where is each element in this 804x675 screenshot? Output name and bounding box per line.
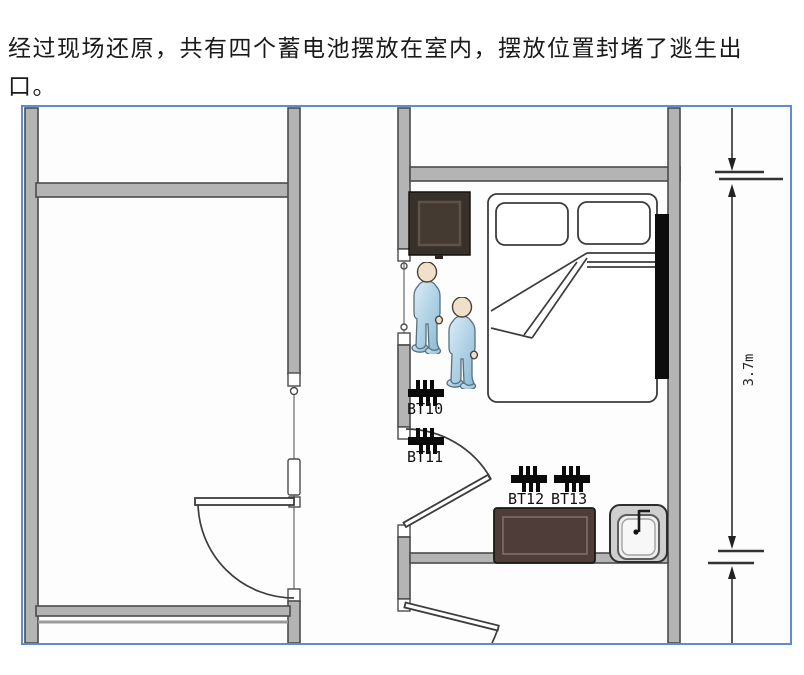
pillow-left: [496, 203, 568, 245]
bed: [488, 194, 669, 402]
battery-bt13-label: BT13: [551, 490, 587, 508]
blocker-bar: [655, 214, 669, 379]
caption-line-1: 经过现场还原，共有四个蓄电池摆放在室内，摆放位置封堵了逃生出: [8, 35, 743, 61]
arrow-down-icon: [728, 158, 736, 171]
dimension-annotation: 3.7m: [708, 108, 783, 643]
floor-plan-figure: BT10 BT11 BT12 BT13: [21, 105, 792, 645]
sink: [610, 505, 667, 562]
battery-bt12-symbol: [511, 466, 547, 492]
in-wall-panel: [288, 459, 300, 495]
lower-door: [404, 603, 498, 643]
door-leaf: [404, 603, 498, 631]
caption-text: 经过现场还原，共有四个蓄电池摆放在室内，摆放位置封堵了逃生出口。: [8, 29, 800, 105]
sofa-dark: [494, 508, 595, 563]
caption-line-2: 口。: [8, 73, 57, 99]
document-page: 经过现场还原，共有四个蓄电池摆放在室内，摆放位置封堵了逃生出口。: [0, 0, 804, 675]
floor-plan-svg: BT10 BT11 BT12 BT13: [23, 107, 790, 643]
door-swing-arc: [198, 502, 294, 598]
battery-bt13-symbol: [554, 466, 590, 492]
pillow-right: [578, 202, 650, 244]
person-1: [412, 262, 442, 355]
battery-bt10-label: BT10: [407, 400, 443, 418]
door-leaf: [195, 498, 294, 505]
arrow-down-icon: [728, 536, 736, 549]
dark-cabinet: [409, 192, 470, 259]
door-leaf: [404, 475, 491, 527]
left-room-door: [195, 497, 300, 598]
battery-bt11-label: BT11: [407, 448, 443, 466]
battery-bt12-label: BT12: [508, 490, 544, 508]
person-2: [447, 297, 477, 390]
dimension-label: 3.7m: [741, 354, 757, 387]
drain-dot: [633, 529, 638, 534]
left-room-walls: [25, 108, 300, 643]
